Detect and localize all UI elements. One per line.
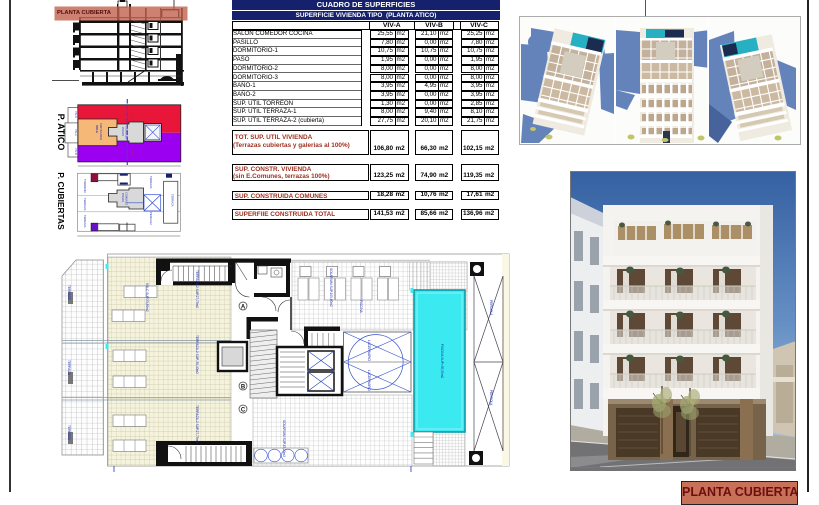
svg-text:PLANTA CUBIERTA: PLANTA CUBIERTA [57,10,112,16]
svg-text:TERRAZA: TERRAZA [83,215,87,228]
svg-text:TERRAZA: TERRAZA [67,360,71,376]
svg-text:PERGOLA: PERGOLA [489,390,493,406]
svg-text:TERRAZA: TERRAZA [67,425,71,441]
svg-text:TERRAZA-2 SUP.27,75m2: TERRAZA-2 SUP.27,75m2 [195,405,199,443]
svg-text:C: C [241,408,246,414]
svg-text:ZONAS: ZONAS [121,193,125,202]
svg-text:TERRAZA: TERRAZA [149,176,153,189]
svg-text:P. ATICO: P. ATICO [56,114,66,151]
svg-text:P. CUBIERTAS: P. CUBIERTAS [56,172,66,230]
svg-text:PISCINA SUP=35,00m2: PISCINA SUP=35,00m2 [440,344,444,379]
svg-text:SOLARIUM SUP.45,20m2: SOLARIUM SUP.45,20m2 [282,420,286,457]
svg-text:LUCERNARIO: LUCERNARIO [367,340,371,361]
svg-text:VIV-C: VIV-C [131,109,135,116]
svg-text:TERRAZA: TERRAZA [83,198,87,211]
svg-text:TERRAZA-2 SUP. 30,40m2: TERRAZA-2 SUP. 30,40m2 [195,335,199,374]
svg-text:LUCERNARIO: LUCERNARIO [367,370,371,391]
svg-text:PISCINA: PISCINA [359,300,363,314]
svg-text:VIV-A: VIV-A [95,125,99,134]
svg-text:TERRAZA: TERRAZA [67,285,71,301]
svg-text:COMUNES: COMUNES [125,192,129,206]
svg-text:VIV-C SUP.23,85m2: VIV-C SUP.23,85m2 [145,283,149,312]
svg-text:PERGOLA: PERGOLA [149,212,153,225]
svg-text:TERRAZA: TERRAZA [171,194,175,207]
svg-text:A: A [241,305,246,311]
svg-text:ZONAS: ZONAS [121,127,125,136]
svg-text:SOLARIUM SUP.105,60m2: SOLARIUM SUP.105,60m2 [329,268,333,307]
svg-text:SUP=43,20m2: SUP=43,20m2 [99,123,103,140]
svg-text:B: B [241,385,246,391]
svg-text:VIV-B: VIV-B [131,149,135,156]
svg-text:TORREON: TORREON [83,179,87,192]
svg-text:TERRAZA-2 SUP.27,75m2: TERRAZA-2 SUP.27,75m2 [195,270,199,308]
svg-text:PERGOLA: PERGOLA [489,300,493,316]
